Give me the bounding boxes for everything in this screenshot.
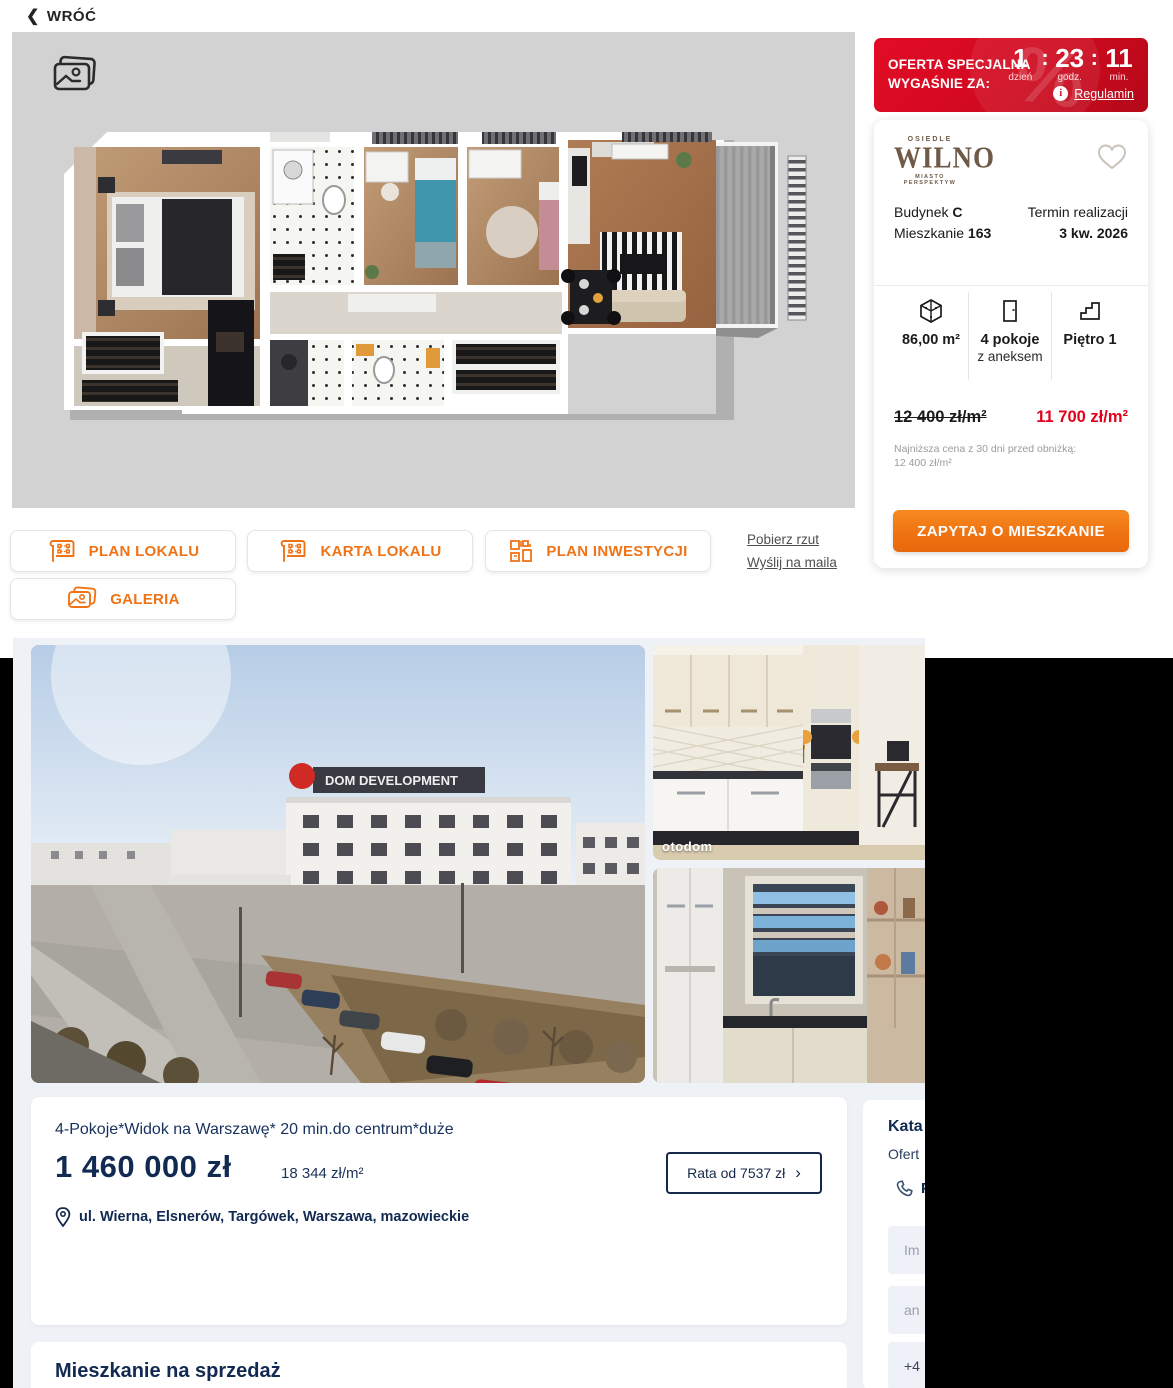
map-pin-icon [55, 1207, 71, 1227]
phone-input[interactable] [888, 1342, 925, 1388]
building-value: Budynek C [894, 202, 963, 223]
wilno-logo: OSIEDLE WILNO MIASTO PERSPEKTYW [894, 136, 966, 186]
email-input[interactable] [888, 1286, 925, 1334]
listing-summary-card: 4-Pokoje*Widok na Warszawę* 20 min.do ce… [31, 1097, 847, 1325]
hours-value: 23 [1055, 44, 1084, 72]
kitchen-dusk-photo-illustration [653, 868, 925, 1083]
galeria-button[interactable]: GALERIA [10, 578, 236, 620]
lowest-price-note: Najniższa cena z 30 dni przed obniżką: 1… [894, 442, 1128, 470]
floor-value: Piętro 1 [1063, 332, 1116, 348]
back-button[interactable]: ❮ WRÓĆ [26, 6, 96, 26]
agent-name: Kata [888, 1118, 923, 1136]
days-value: 1 [1013, 44, 1027, 72]
rooms-value: 4 pokoje [981, 332, 1040, 348]
gallery-photo-street[interactable]: DOM DEVELOPMENT [31, 645, 645, 1083]
kitchen-photo-illustration [653, 645, 925, 860]
area-value: 86,00 m² [902, 332, 960, 348]
unit-details-card: OSIEDLE WILNO MIASTO PERSPEKTYW Budynek … [874, 120, 1148, 568]
karta-lokalu-label: KARTA LOKALU [320, 543, 441, 560]
floorplan-image[interactable] [12, 32, 855, 508]
installment-label: Rata od 7537 zł [687, 1165, 785, 1181]
gallery-photo-kitchen-1[interactable]: otodom [653, 645, 925, 860]
contact-card: Kata Ofert P [863, 1100, 925, 1388]
section-title: Mieszkanie na sprzedaż [55, 1360, 281, 1383]
price-row: 12 400 zł/m² 11 700 zł/m² [894, 408, 1128, 427]
gallery-photos-icon [66, 586, 98, 612]
offer-text: Ofert [888, 1146, 919, 1162]
phone-icon [896, 1180, 913, 1197]
send-to-mail-link[interactable]: Wyślij na maila [747, 555, 837, 570]
plan-lokalu-button[interactable]: PLAN LOKALU [10, 530, 236, 572]
unit-stats: 86,00 m² 4 pokoje z aneksem Piętro 1 [894, 292, 1128, 380]
plan-inwestycji-label: PLAN INWESTYCJI [546, 543, 687, 560]
minutes-value: 11 [1105, 44, 1133, 72]
gallery-photo-kitchen-2[interactable] [653, 868, 925, 1083]
site-plan-icon [508, 538, 534, 564]
plan-lokalu-label: PLAN LOKALU [89, 543, 200, 560]
apartment-value: Mieszkanie 163 [894, 223, 991, 244]
floorplan-illustration [12, 32, 855, 508]
price-per-m2: 18 344 zł/m² [281, 1165, 364, 1182]
listing-address: ul. Wierna, Elsnerów, Targówek, Warszawa… [79, 1209, 469, 1225]
listing-address-row: ul. Wierna, Elsnerów, Targówek, Warszawa… [55, 1207, 469, 1227]
listing-price: 1 460 000 zł [55, 1149, 232, 1185]
stat-area: 86,00 m² [894, 292, 968, 380]
stairs-icon [1077, 298, 1103, 324]
info-icon: i [1053, 86, 1068, 101]
plan-map-icon [278, 538, 308, 564]
chevron-left-icon: ❮ [26, 6, 40, 26]
chevron-right-icon: › [795, 1166, 801, 1180]
regulamin-link[interactable]: i Regulamin [1053, 86, 1134, 101]
phone-partial: P [921, 1180, 925, 1197]
otodom-watermark: otodom [662, 839, 713, 854]
term-label: Termin realizacji [1028, 202, 1128, 223]
door-icon [997, 298, 1023, 324]
hours-label: godz. [1057, 72, 1081, 83]
special-offer-countdown: % OFERTA SPECJALNA WYGAŚNIE ZA: 1 dzień … [874, 38, 1148, 112]
rooms-sub: z aneksem [977, 349, 1042, 364]
stat-floor: Piętro 1 [1052, 292, 1128, 380]
installment-button[interactable]: Rata od 7537 zł › [666, 1152, 822, 1194]
favorite-heart-icon[interactable] [1096, 142, 1128, 172]
name-input[interactable] [888, 1226, 925, 1274]
download-plan-link[interactable]: Pobierz rzut [747, 532, 819, 547]
karta-lokalu-button[interactable]: KARTA LOKALU [247, 530, 473, 572]
ask-about-apartment-button[interactable]: ZAPYTAJ O MIESZKANIE [893, 510, 1129, 552]
days-label: dzień [1008, 72, 1032, 83]
divider [874, 285, 1148, 286]
galeria-label: GALERIA [110, 591, 180, 608]
plan-inwestycji-button[interactable]: PLAN INWESTYCJI [485, 530, 711, 572]
stat-rooms: 4 pokoje z aneksem [968, 292, 1052, 380]
gallery-icon [50, 54, 100, 96]
phone-link[interactable]: P [896, 1180, 925, 1197]
new-price: 11 700 zł/m² [1036, 408, 1128, 427]
countdown-timer: 1 dzień : 23 godz. : 11 min. [1003, 44, 1136, 83]
listing-panel: DOM DEVELOPMENT [13, 638, 925, 1388]
unit-info-rows: Budynek C Termin realizacji Mieszkanie 1… [894, 202, 1128, 244]
old-price: 12 400 zł/m² [894, 408, 987, 427]
term-value: 3 kw. 2026 [1059, 223, 1128, 244]
street-photo-illustration: DOM DEVELOPMENT [31, 645, 645, 1083]
listing-title: 4-Pokoje*Widok na Warszawę* 20 min.do ce… [55, 1121, 454, 1139]
section-card: Mieszkanie na sprzedaż [31, 1342, 847, 1388]
area-cube-icon [918, 298, 944, 324]
back-label: WRÓĆ [47, 8, 97, 25]
plan-map-icon [47, 538, 77, 564]
minutes-label: min. [1110, 72, 1129, 83]
svg-text:DOM DEVELOPMENT: DOM DEVELOPMENT [325, 773, 458, 788]
